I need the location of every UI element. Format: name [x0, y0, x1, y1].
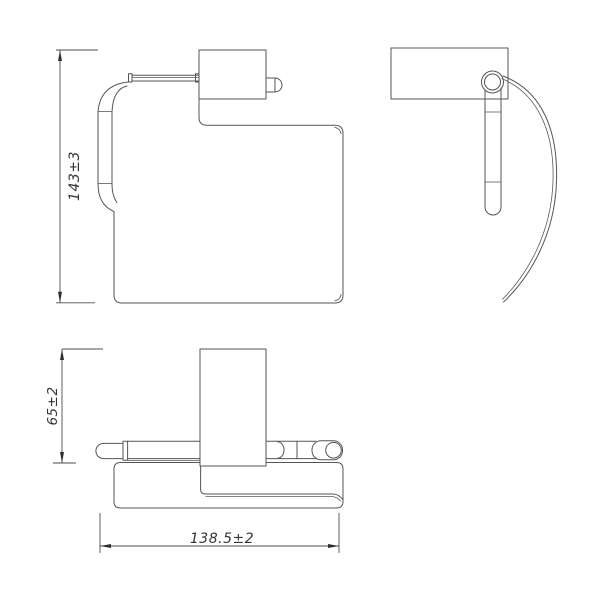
top-spindle-end-ball	[326, 442, 342, 458]
arrow-up-icon	[60, 349, 64, 360]
dimension-depth-label: 65±2	[45, 386, 61, 425]
arrow-down-icon	[60, 452, 64, 463]
side-cover-curve-outer	[503, 76, 557, 302]
top-cover-outline	[114, 463, 343, 509]
front-mounting-plate	[199, 50, 266, 99]
top-bar-left-capsule	[96, 443, 123, 458]
top-cover-step-lower	[206, 496, 341, 501]
arrow-left-icon	[100, 544, 111, 548]
arrow-right-icon	[328, 544, 339, 548]
side-mounting-plate	[391, 48, 508, 99]
holder-drawing: 143±3	[0, 0, 600, 600]
front-arm-inner	[112, 86, 127, 203]
side-arm	[485, 88, 501, 215]
side-cover-curve-inner	[502, 79, 554, 300]
front-cover-outline	[114, 99, 343, 303]
top-view: 65±2 138.5±2	[45, 349, 343, 553]
dimension-width: 138.5±2	[100, 513, 339, 553]
top-cover-step-upper	[201, 466, 343, 499]
technical-drawing-canvas: 143±3	[0, 0, 600, 600]
top-spindle-spring-cap	[278, 442, 285, 458]
top-bar-collar	[123, 441, 128, 460]
dimension-depth: 65±2	[45, 349, 103, 463]
top-mounting-plate	[200, 349, 266, 466]
front-spindle-nub	[266, 78, 282, 92]
front-cover-corner-detail-bottom	[335, 294, 342, 301]
side-view	[391, 48, 557, 302]
front-view: 143±3	[56, 50, 343, 303]
front-cover-corner-detail-top	[335, 127, 342, 134]
arrow-down-icon	[58, 292, 62, 303]
dimension-width-label: 138.5±2	[190, 531, 254, 547]
arrow-up-icon	[58, 50, 62, 61]
front-roll-bar-left-cap	[129, 74, 133, 82]
dimension-height: 143±3	[56, 50, 98, 303]
dimension-height-label: 143±3	[67, 151, 83, 201]
side-pivot-inner	[485, 74, 501, 90]
